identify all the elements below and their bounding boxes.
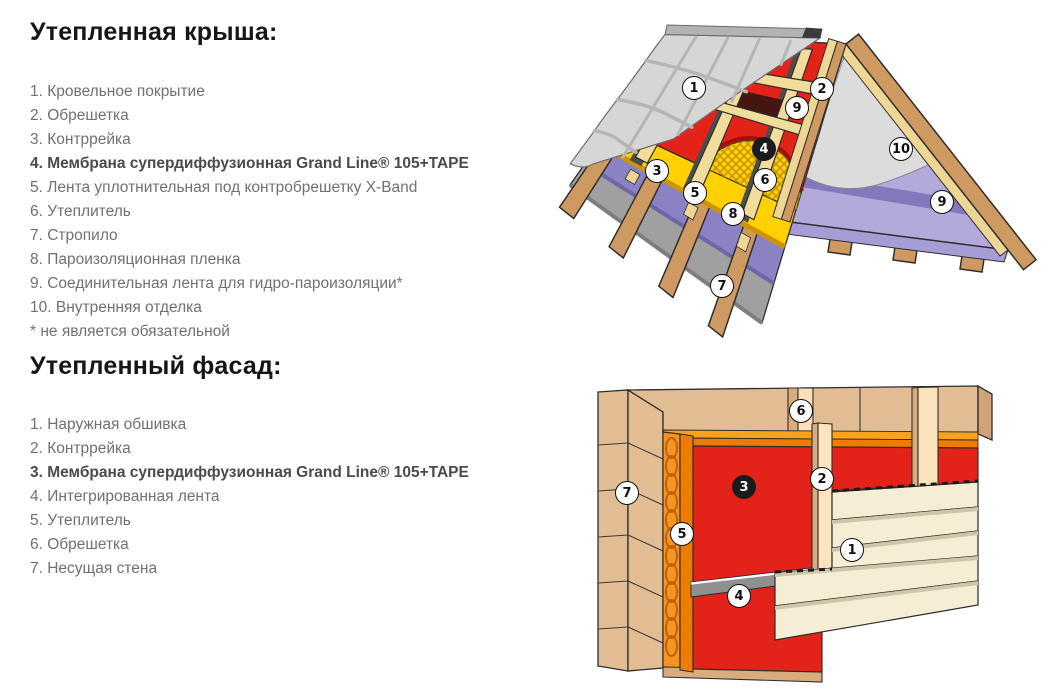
list-item: 4. Интегрированная лента (30, 485, 469, 509)
facade-section-heading: Утепленный фасад: (30, 352, 282, 381)
list-item: 2. Контррейка (30, 437, 469, 461)
list-item: 5. Лента уплотнительная под контробрешет… (30, 176, 469, 200)
roof-diagram (540, 0, 1045, 345)
facade-badge-7: 7 (615, 481, 639, 505)
facade-badge-2: 2 (810, 467, 834, 491)
facade-legend-list: 1. Наружная обшивка 2. Контррейка 3. Мем… (30, 413, 469, 581)
facade-badge-6: 6 (789, 399, 813, 423)
roof-badge-4: 4 (752, 137, 776, 161)
facade-badge-3: 3 (732, 475, 756, 499)
list-item: 7. Несущая стена (30, 557, 469, 581)
list-item-highlighted: 3. Мембрана супердиффузионная Grand Line… (30, 461, 469, 485)
list-item: 10. Внутренняя отделка (30, 296, 469, 320)
roof-section-heading: Утепленная крыша: (30, 18, 278, 47)
list-item: 5. Утеплитель (30, 509, 469, 533)
roof-badge-9b: 9 (930, 190, 954, 214)
roof-badge-5: 5 (683, 181, 707, 205)
list-item-highlighted: 4. Мембрана супердиффузионная Grand Line… (30, 152, 469, 176)
list-item: 9. Соединительная лента для гидро-пароиз… (30, 272, 469, 296)
roof-slope (560, 25, 847, 337)
roof-badge-2: 2 (810, 77, 834, 101)
roof-badge-7: 7 (710, 274, 734, 298)
list-item: 7. Стропило (30, 224, 469, 248)
list-item: 3. Контррейка (30, 128, 469, 152)
page: Утепленная крыша: 1. Кровельное покрытие… (0, 0, 1045, 692)
roof-badge-1: 1 (682, 76, 706, 100)
facade-badge-4: 4 (727, 584, 751, 608)
roof-badge-3: 3 (645, 159, 669, 183)
facade-badge-1: 1 (840, 538, 864, 562)
roof-badge-10: 10 (889, 137, 913, 161)
facade-badge-5: 5 (670, 522, 694, 546)
roof-badge-6: 6 (753, 168, 777, 192)
footnote: * не является обязательной (30, 320, 469, 344)
list-item: 2. Обрешетка (30, 104, 469, 128)
list-item: 1. Кровельное покрытие (30, 80, 469, 104)
wall-right-face (978, 386, 992, 440)
roof-legend-list: 1. Кровельное покрытие 2. Обрешетка 3. К… (30, 80, 469, 344)
membrane-frame-bar (680, 434, 693, 672)
list-item: 6. Утеплитель (30, 200, 469, 224)
list-item: 6. Обрешетка (30, 533, 469, 557)
roof-badge-9a: 9 (785, 96, 809, 120)
roof-badge-8: 8 (721, 202, 745, 226)
list-item: 1. Наружная обшивка (30, 413, 469, 437)
list-item: 8. Пароизоляционная пленка (30, 248, 469, 272)
